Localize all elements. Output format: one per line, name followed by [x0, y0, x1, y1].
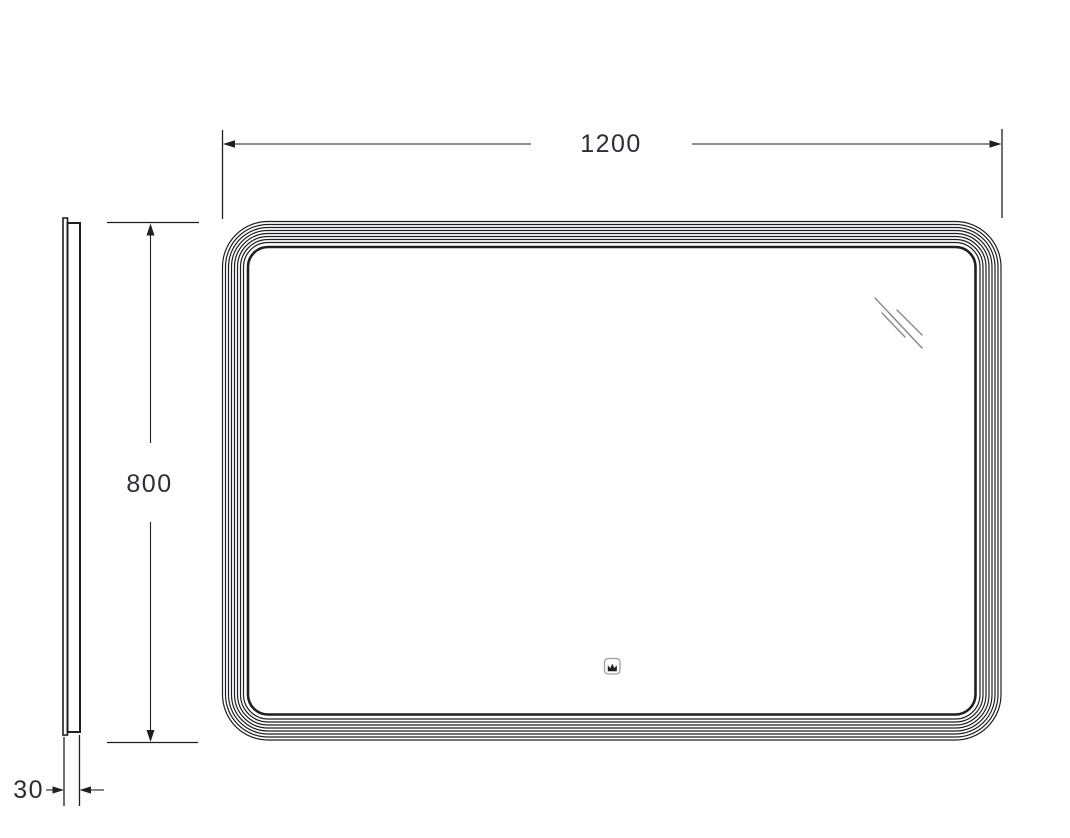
- width-dimension-label: 1200: [580, 130, 642, 158]
- reflection-stroke-long: [875, 298, 922, 348]
- frame-line: [244, 243, 981, 720]
- frame-line: [232, 231, 993, 732]
- depth-dimension: 30: [13, 735, 104, 806]
- arrow-left-icon: [223, 140, 235, 148]
- width-dimension: 1200: [223, 129, 1003, 219]
- frame-line: [238, 237, 987, 726]
- arrow-up-icon: [147, 224, 155, 236]
- reflection-stroke-medium: [897, 310, 922, 335]
- mirror-technical-drawing: 30 800 1200: [0, 0, 1070, 838]
- arrow-right-icon: [990, 140, 1002, 148]
- height-dimension-label: 800: [126, 470, 172, 498]
- arrow-right-icon: [53, 786, 65, 793]
- arrow-left-icon: [80, 786, 92, 793]
- glass-reflection-marks: [875, 298, 922, 348]
- touch-sensor[interactable]: [605, 659, 621, 675]
- drawing-canvas: 30 800 1200: [0, 0, 1070, 838]
- side-view: [63, 218, 80, 735]
- frame-line: [241, 240, 984, 723]
- frame-line: [235, 234, 990, 729]
- depth-dimension-label: 30: [13, 776, 44, 804]
- side-view-body: [68, 223, 81, 732]
- height-dimension: 800: [107, 223, 199, 743]
- arrow-down-icon: [147, 730, 155, 742]
- mirror-inner-edge: [248, 247, 976, 715]
